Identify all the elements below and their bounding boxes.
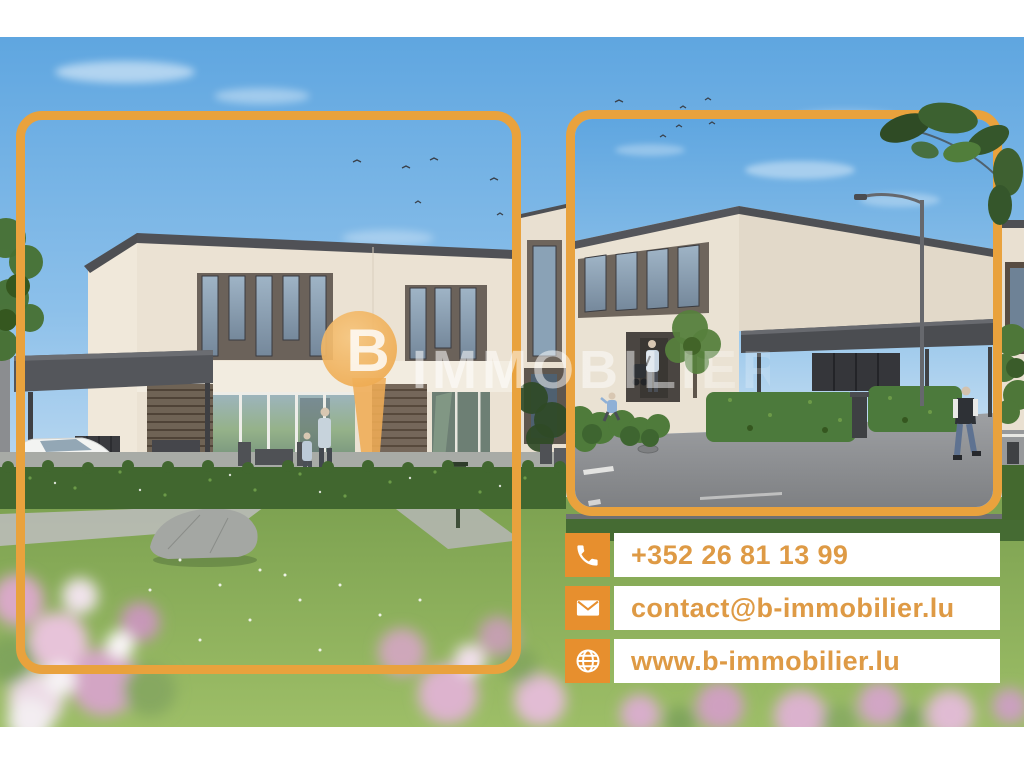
real-estate-flyer: B IMMOBILIER +352 26 81 13 99 conta bbox=[0, 0, 1024, 768]
right-hedge-strip bbox=[566, 514, 1024, 541]
bottom-white-band bbox=[0, 727, 1024, 768]
photo-frame-left bbox=[16, 111, 521, 674]
foreground-foliage bbox=[860, 98, 1024, 243]
gap-house bbox=[516, 204, 570, 460]
top-white-band bbox=[0, 0, 1024, 37]
